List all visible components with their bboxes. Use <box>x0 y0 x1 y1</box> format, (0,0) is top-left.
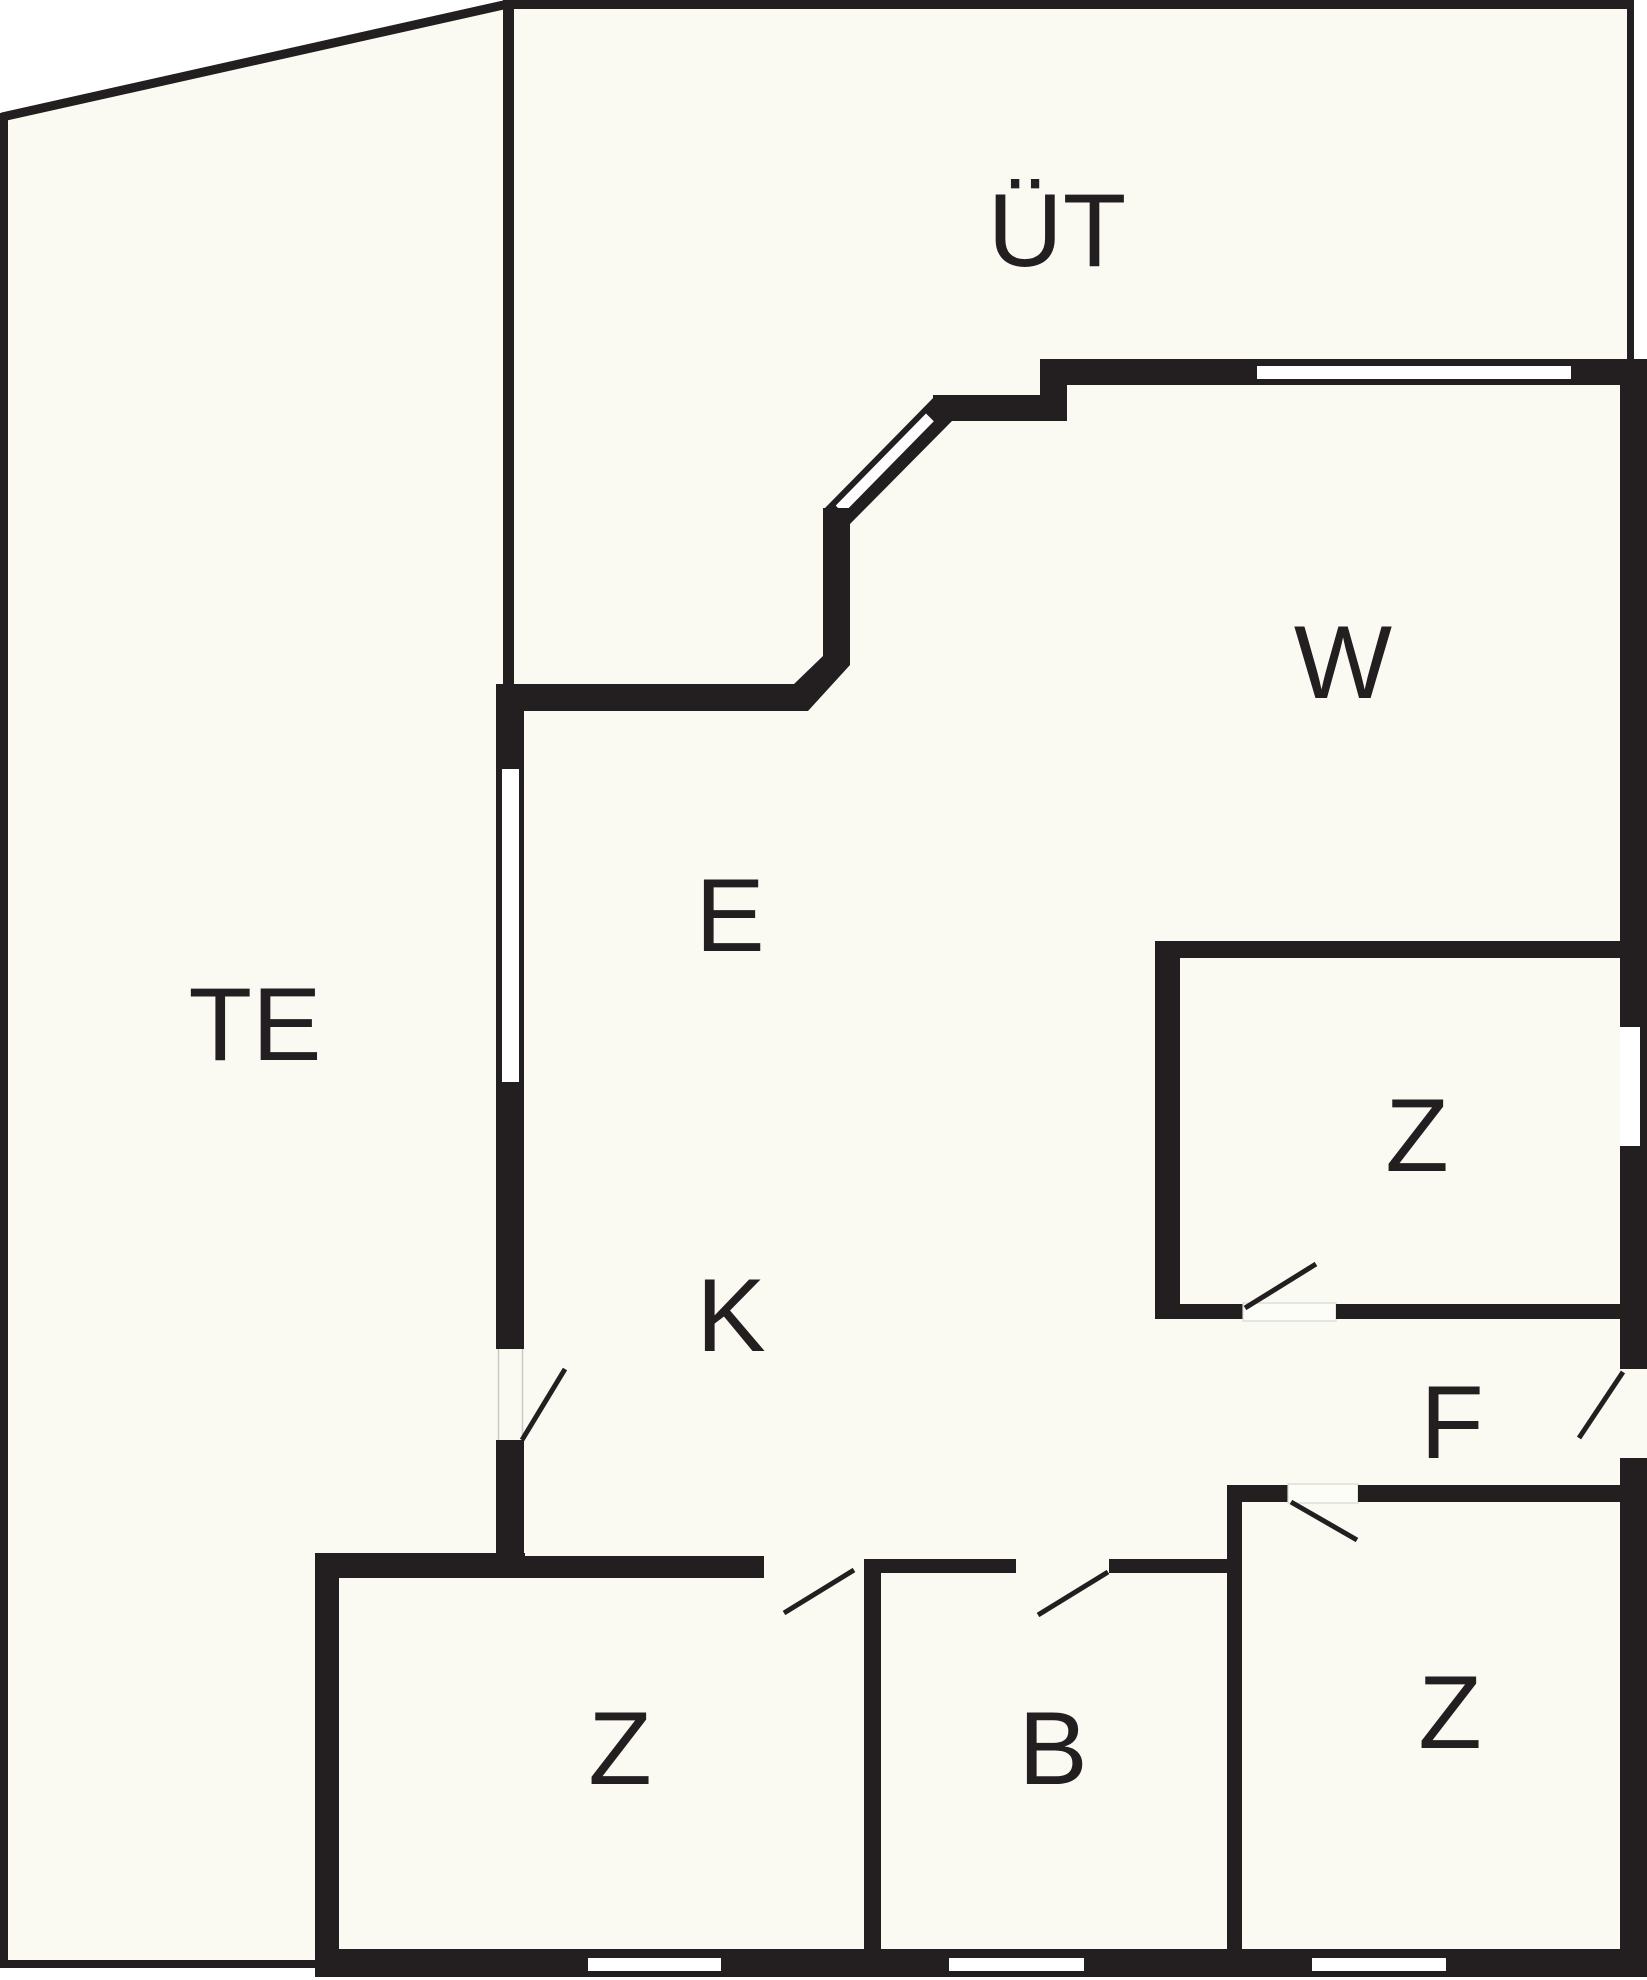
svg-text:F: F <box>1420 1365 1484 1481</box>
svg-text:ÜT: ÜT <box>988 173 1127 289</box>
svg-text:W: W <box>1294 605 1392 721</box>
svg-text:Z: Z <box>1385 1078 1449 1194</box>
svg-text:K: K <box>696 1258 765 1374</box>
svg-text:TE: TE <box>189 967 322 1083</box>
svg-text:E: E <box>695 858 764 974</box>
svg-text:Z: Z <box>588 1691 652 1807</box>
svg-text:B: B <box>1018 1691 1087 1807</box>
svg-text:Z: Z <box>1418 1655 1482 1771</box>
